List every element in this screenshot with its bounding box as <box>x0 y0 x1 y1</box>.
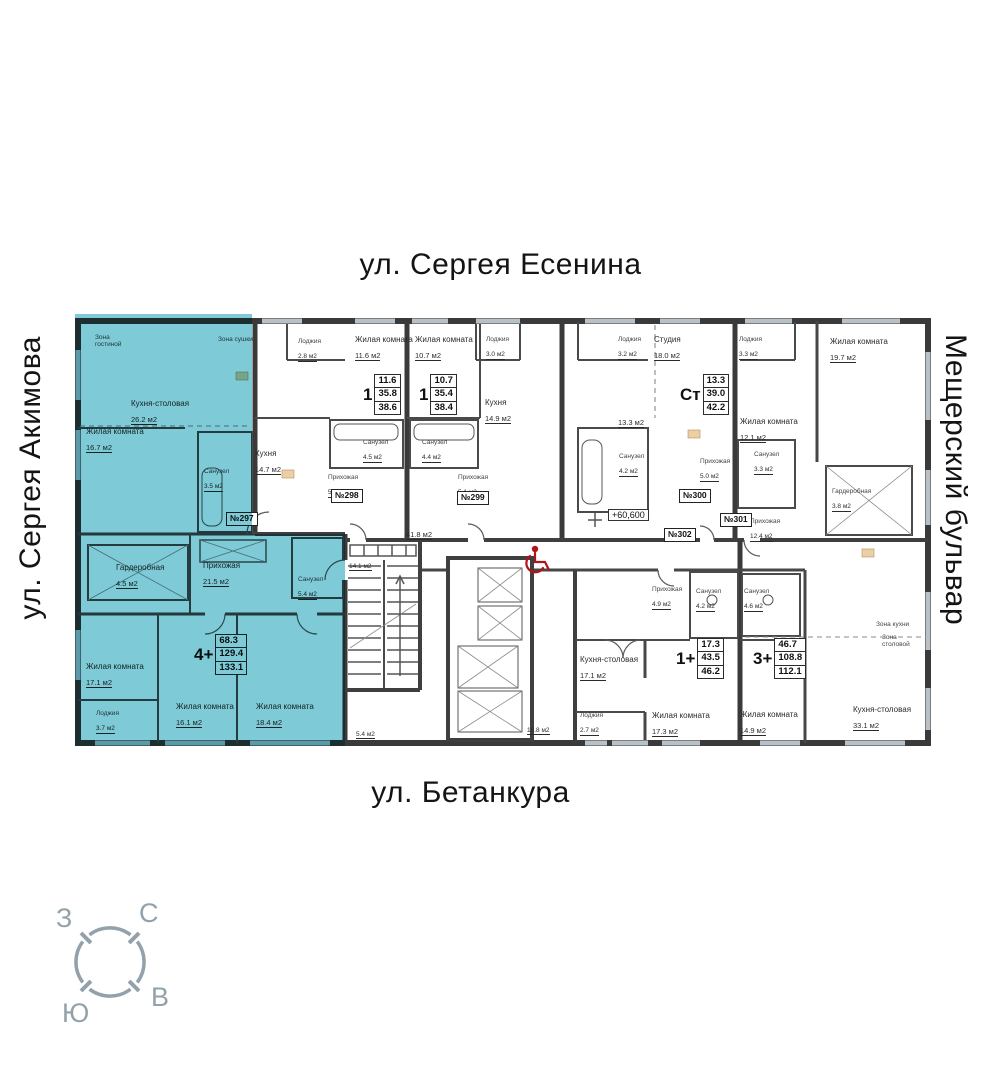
compass-label-east: В <box>151 982 169 1013</box>
room-label: Лоджия3.0 м2 <box>486 336 509 361</box>
room-label: Лоджия3.2 м2 <box>618 336 641 361</box>
room-label: Санузел4.2 м2 <box>696 588 721 613</box>
apartment-type-label: 3+46.7108.8112.1 <box>753 638 806 679</box>
room-label: Санузел3.3 м2 <box>754 451 779 476</box>
room-label: Жилая комната17.3 м2 <box>652 712 710 739</box>
room-label: Кухня14.7 м2 <box>255 450 281 477</box>
apartment-number-badge: №299 <box>457 491 489 505</box>
apartment-type-label: Ст13.339.042.2 <box>680 374 729 415</box>
apartment-type-label: 110.735.438.4 <box>419 374 457 415</box>
apartment-number-badge: №301 <box>720 513 752 527</box>
zone-label: Зона столовой <box>882 634 910 649</box>
street-name-top: ул. Сергея Есенина <box>0 248 1001 282</box>
street-name-right: Мещерский бульвар <box>938 334 972 625</box>
room-label: 13.3 м2 <box>618 412 644 430</box>
area-label: 5.4 м2 <box>356 723 375 741</box>
room-label: Прихожая5.0 м2 <box>700 458 730 483</box>
room-label: Жилая комната19.7 м2 <box>830 338 888 365</box>
room-label: Лоджия3.3 м2 <box>739 336 762 361</box>
room-label: Гардеробная3.8 м2 <box>832 488 871 513</box>
apartment-type: 3+ <box>753 649 772 669</box>
room-label: Лоджия2.7 м2 <box>580 712 603 737</box>
room-label: Кухня-столовая17.1 м2 <box>580 656 638 683</box>
area-label: 16.8 м2 <box>527 719 550 737</box>
room-label: Прихожая4.9 м2 <box>652 586 682 611</box>
room-label: Санузел4.5 м2 <box>363 439 388 464</box>
apartment-areas: 11.635.838.6 <box>374 374 401 415</box>
apartment-areas: 10.735.438.4 <box>430 374 457 415</box>
room-label: Кухня14.9 м2 <box>485 399 511 426</box>
room-label: Студия18.0 м2 <box>654 336 681 363</box>
elevation-mark: +60,600 <box>608 509 649 521</box>
zone-label: Зона кухни <box>876 621 909 628</box>
compass-label-north: С <box>139 898 159 929</box>
room-label: Жилая комната11.6 м2 <box>355 336 413 363</box>
area-label: 41.8 м2 <box>406 524 432 542</box>
apartment-areas: 46.7108.8112.1 <box>774 638 806 679</box>
room-label: Санузел4.2 м2 <box>619 453 644 478</box>
apartment-areas: 17.343.546.2 <box>697 638 724 679</box>
room-label: Жилая комната10.7 м2 <box>415 336 473 363</box>
apartment-type: 1+ <box>676 649 695 669</box>
apartment-number-badge: №298 <box>331 489 363 503</box>
floor-plan-page: Зона гостинойЗона сушкиКухня-столовая26.… <box>0 0 1001 1068</box>
room-label: Жилая комната12.1 м2 <box>740 418 798 445</box>
apartment-areas: 13.339.042.2 <box>703 374 730 415</box>
apartment-number-badge: №302 <box>664 528 696 542</box>
room-label: Санузел4.4 м2 <box>422 439 447 464</box>
street-name-bottom: ул. Бетанкура <box>0 776 941 810</box>
street-name-left: ул. Сергея Акимова <box>14 336 48 620</box>
area-label: 14.1 м2 <box>349 555 372 573</box>
room-label: Санузел4.6 м2 <box>744 588 769 613</box>
apartment-type-label: 1+17.343.546.2 <box>676 638 724 679</box>
apartment-type-label: 111.635.838.6 <box>363 374 401 415</box>
compass-label-south: Ю <box>62 998 89 1029</box>
room-label: Прихожая12.4 м2 <box>750 518 780 543</box>
apartment-type: 1 <box>363 385 372 405</box>
room-label: Жилая комната14.9 м2 <box>740 711 798 738</box>
compass-label-west: З <box>56 903 72 934</box>
apartment-type: 1 <box>419 385 428 405</box>
apartment-number-badge: №300 <box>679 489 711 503</box>
room-label: Кухня-столовая33.1 м2 <box>853 706 911 733</box>
apartment-type: Ст <box>680 385 701 405</box>
room-label: Лоджия2.8 м2 <box>298 338 321 363</box>
